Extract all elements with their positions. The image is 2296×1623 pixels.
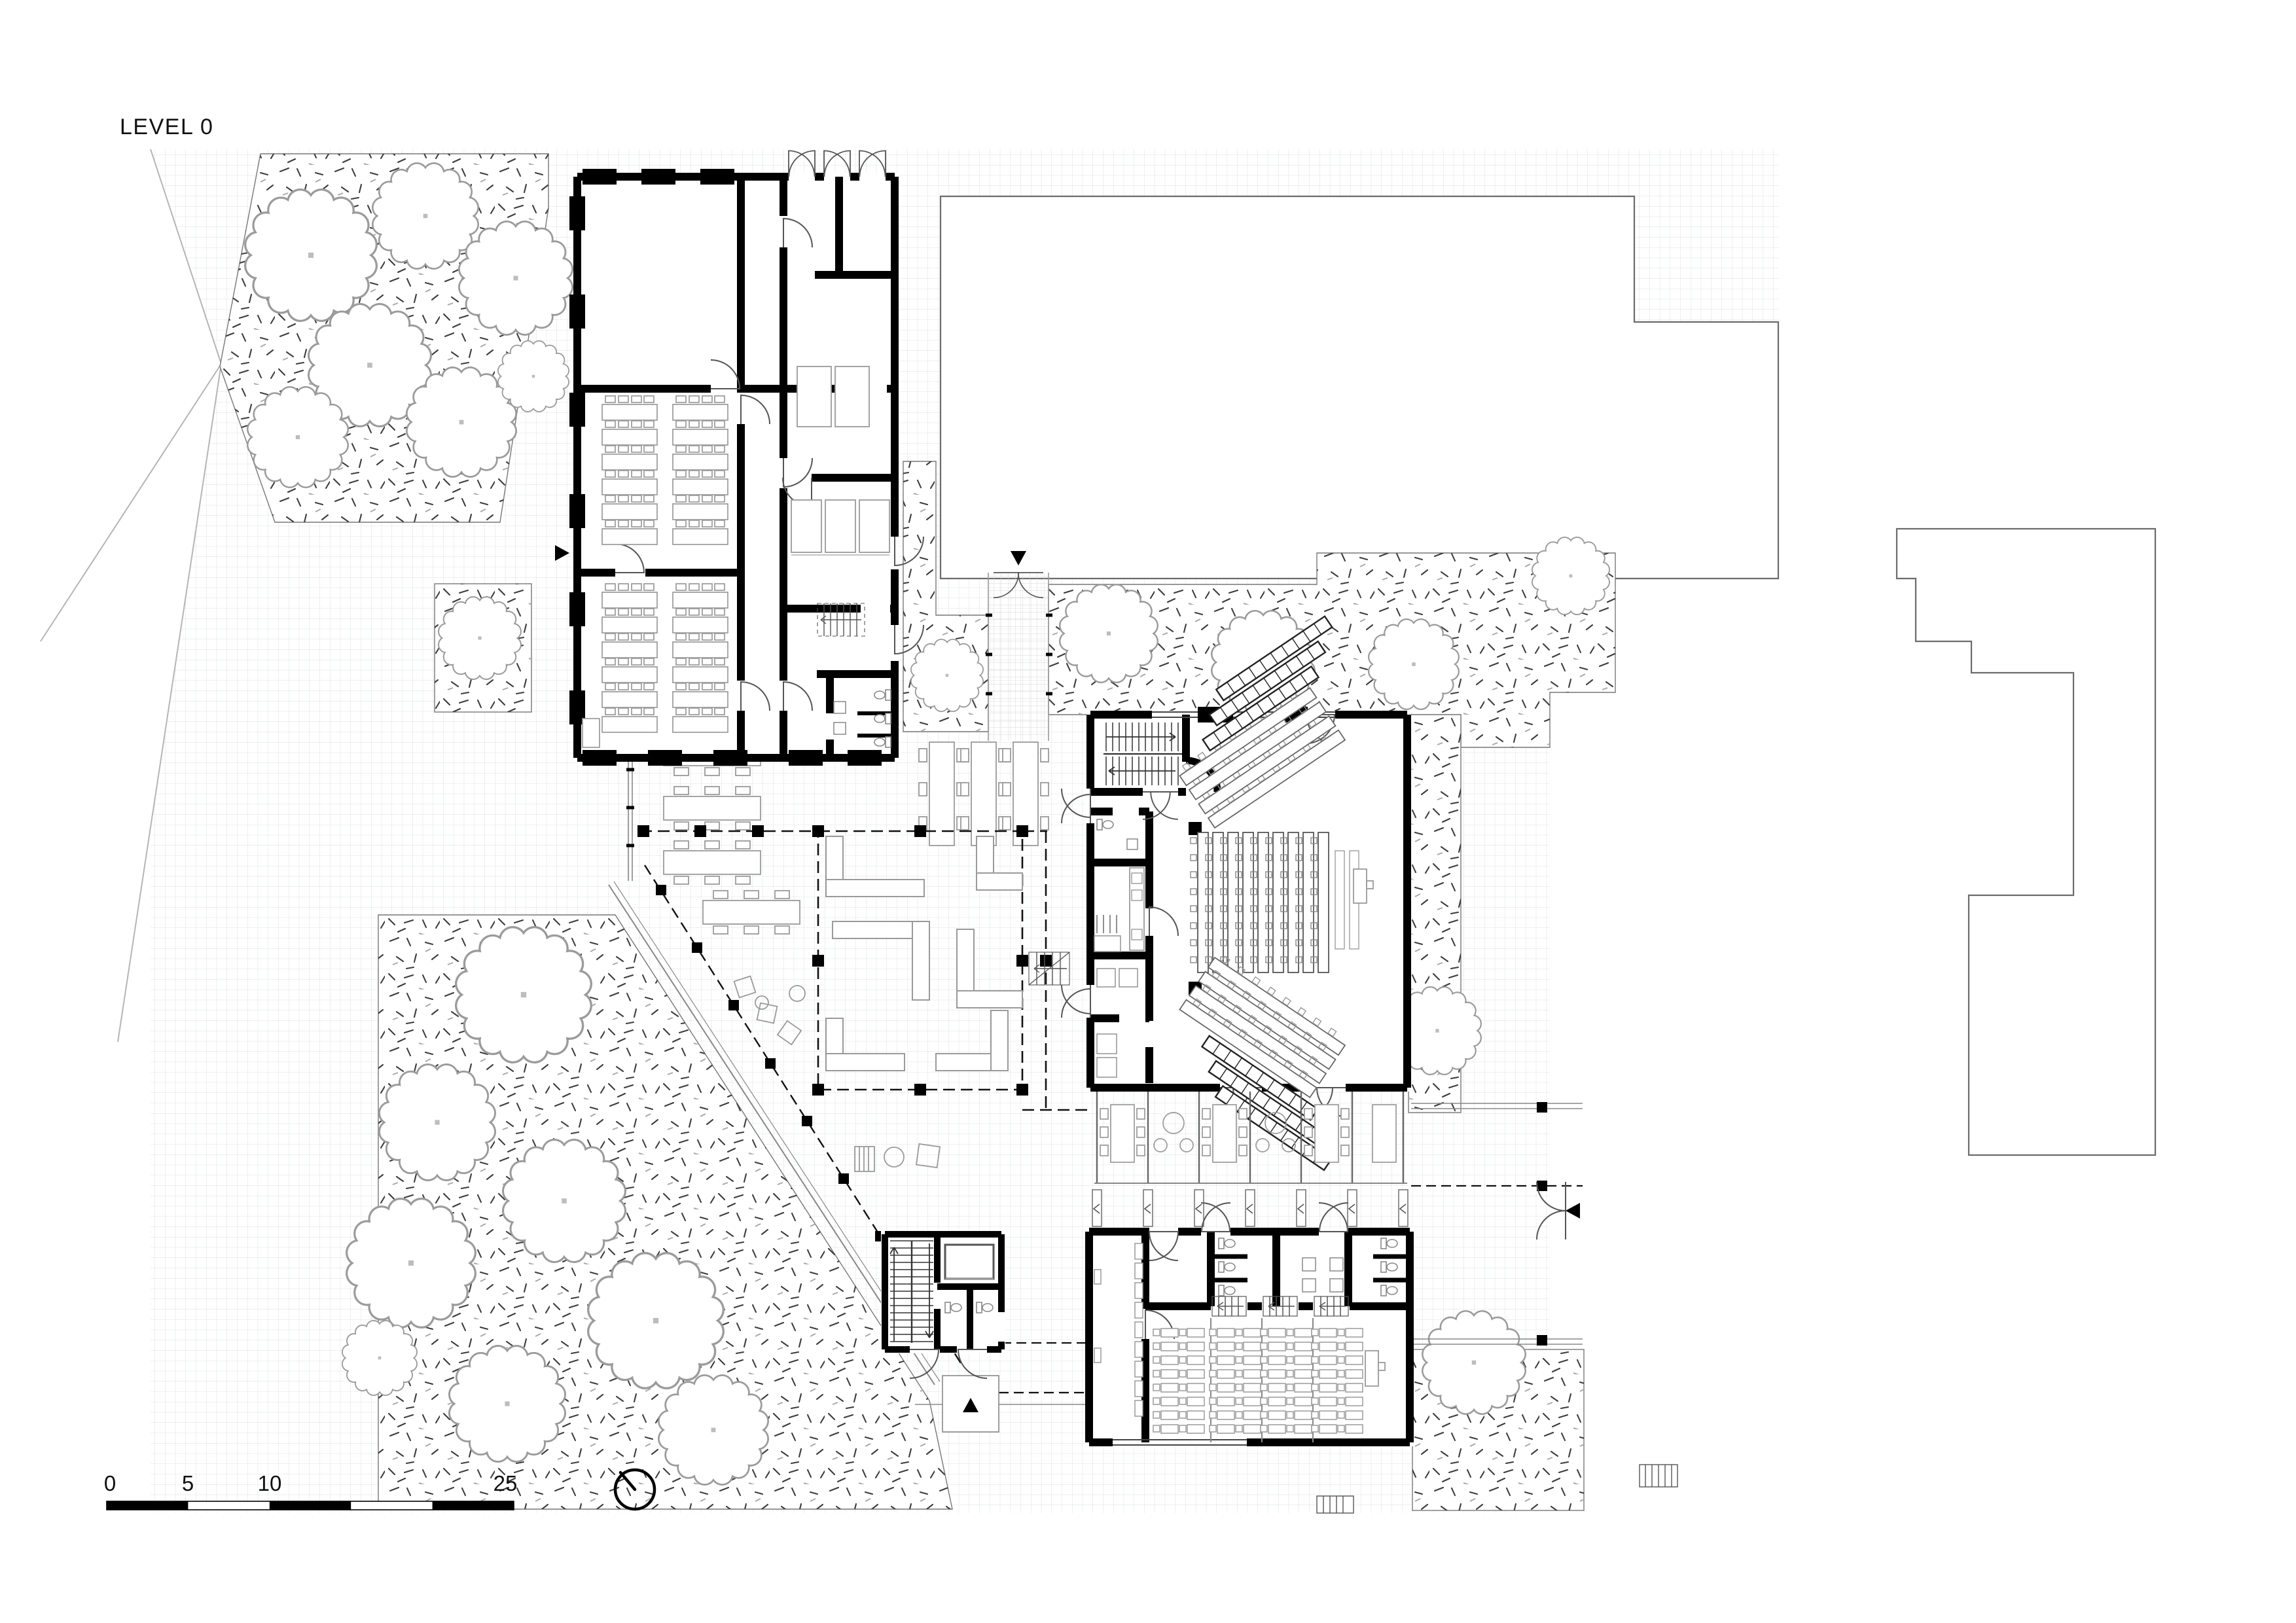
- entry-walkway: [986, 551, 1052, 741]
- scale-label-25: 25: [493, 1471, 518, 1495]
- entrance-arrow-east-icon: [1566, 1203, 1580, 1219]
- teacher-desk: [583, 719, 600, 747]
- plan-sheet: LEVEL 0 0 5 10 25: [0, 0, 2296, 1623]
- scale-label-0: 0: [104, 1471, 116, 1495]
- scale-label-10: 10: [258, 1471, 282, 1495]
- scale-label-5: 5: [182, 1471, 194, 1495]
- table: [664, 787, 761, 830]
- floor-plan-canvas: LEVEL 0 0 5 10 25: [0, 0, 2296, 1623]
- elevator: [945, 1245, 994, 1279]
- table: [703, 891, 800, 934]
- plan-title: LEVEL 0: [120, 115, 213, 139]
- context-building-east: [1897, 529, 2155, 1155]
- south-building: [1085, 1203, 1414, 1446]
- study-table: [961, 742, 1007, 846]
- table: [664, 841, 761, 884]
- north-wing-building: [569, 151, 924, 766]
